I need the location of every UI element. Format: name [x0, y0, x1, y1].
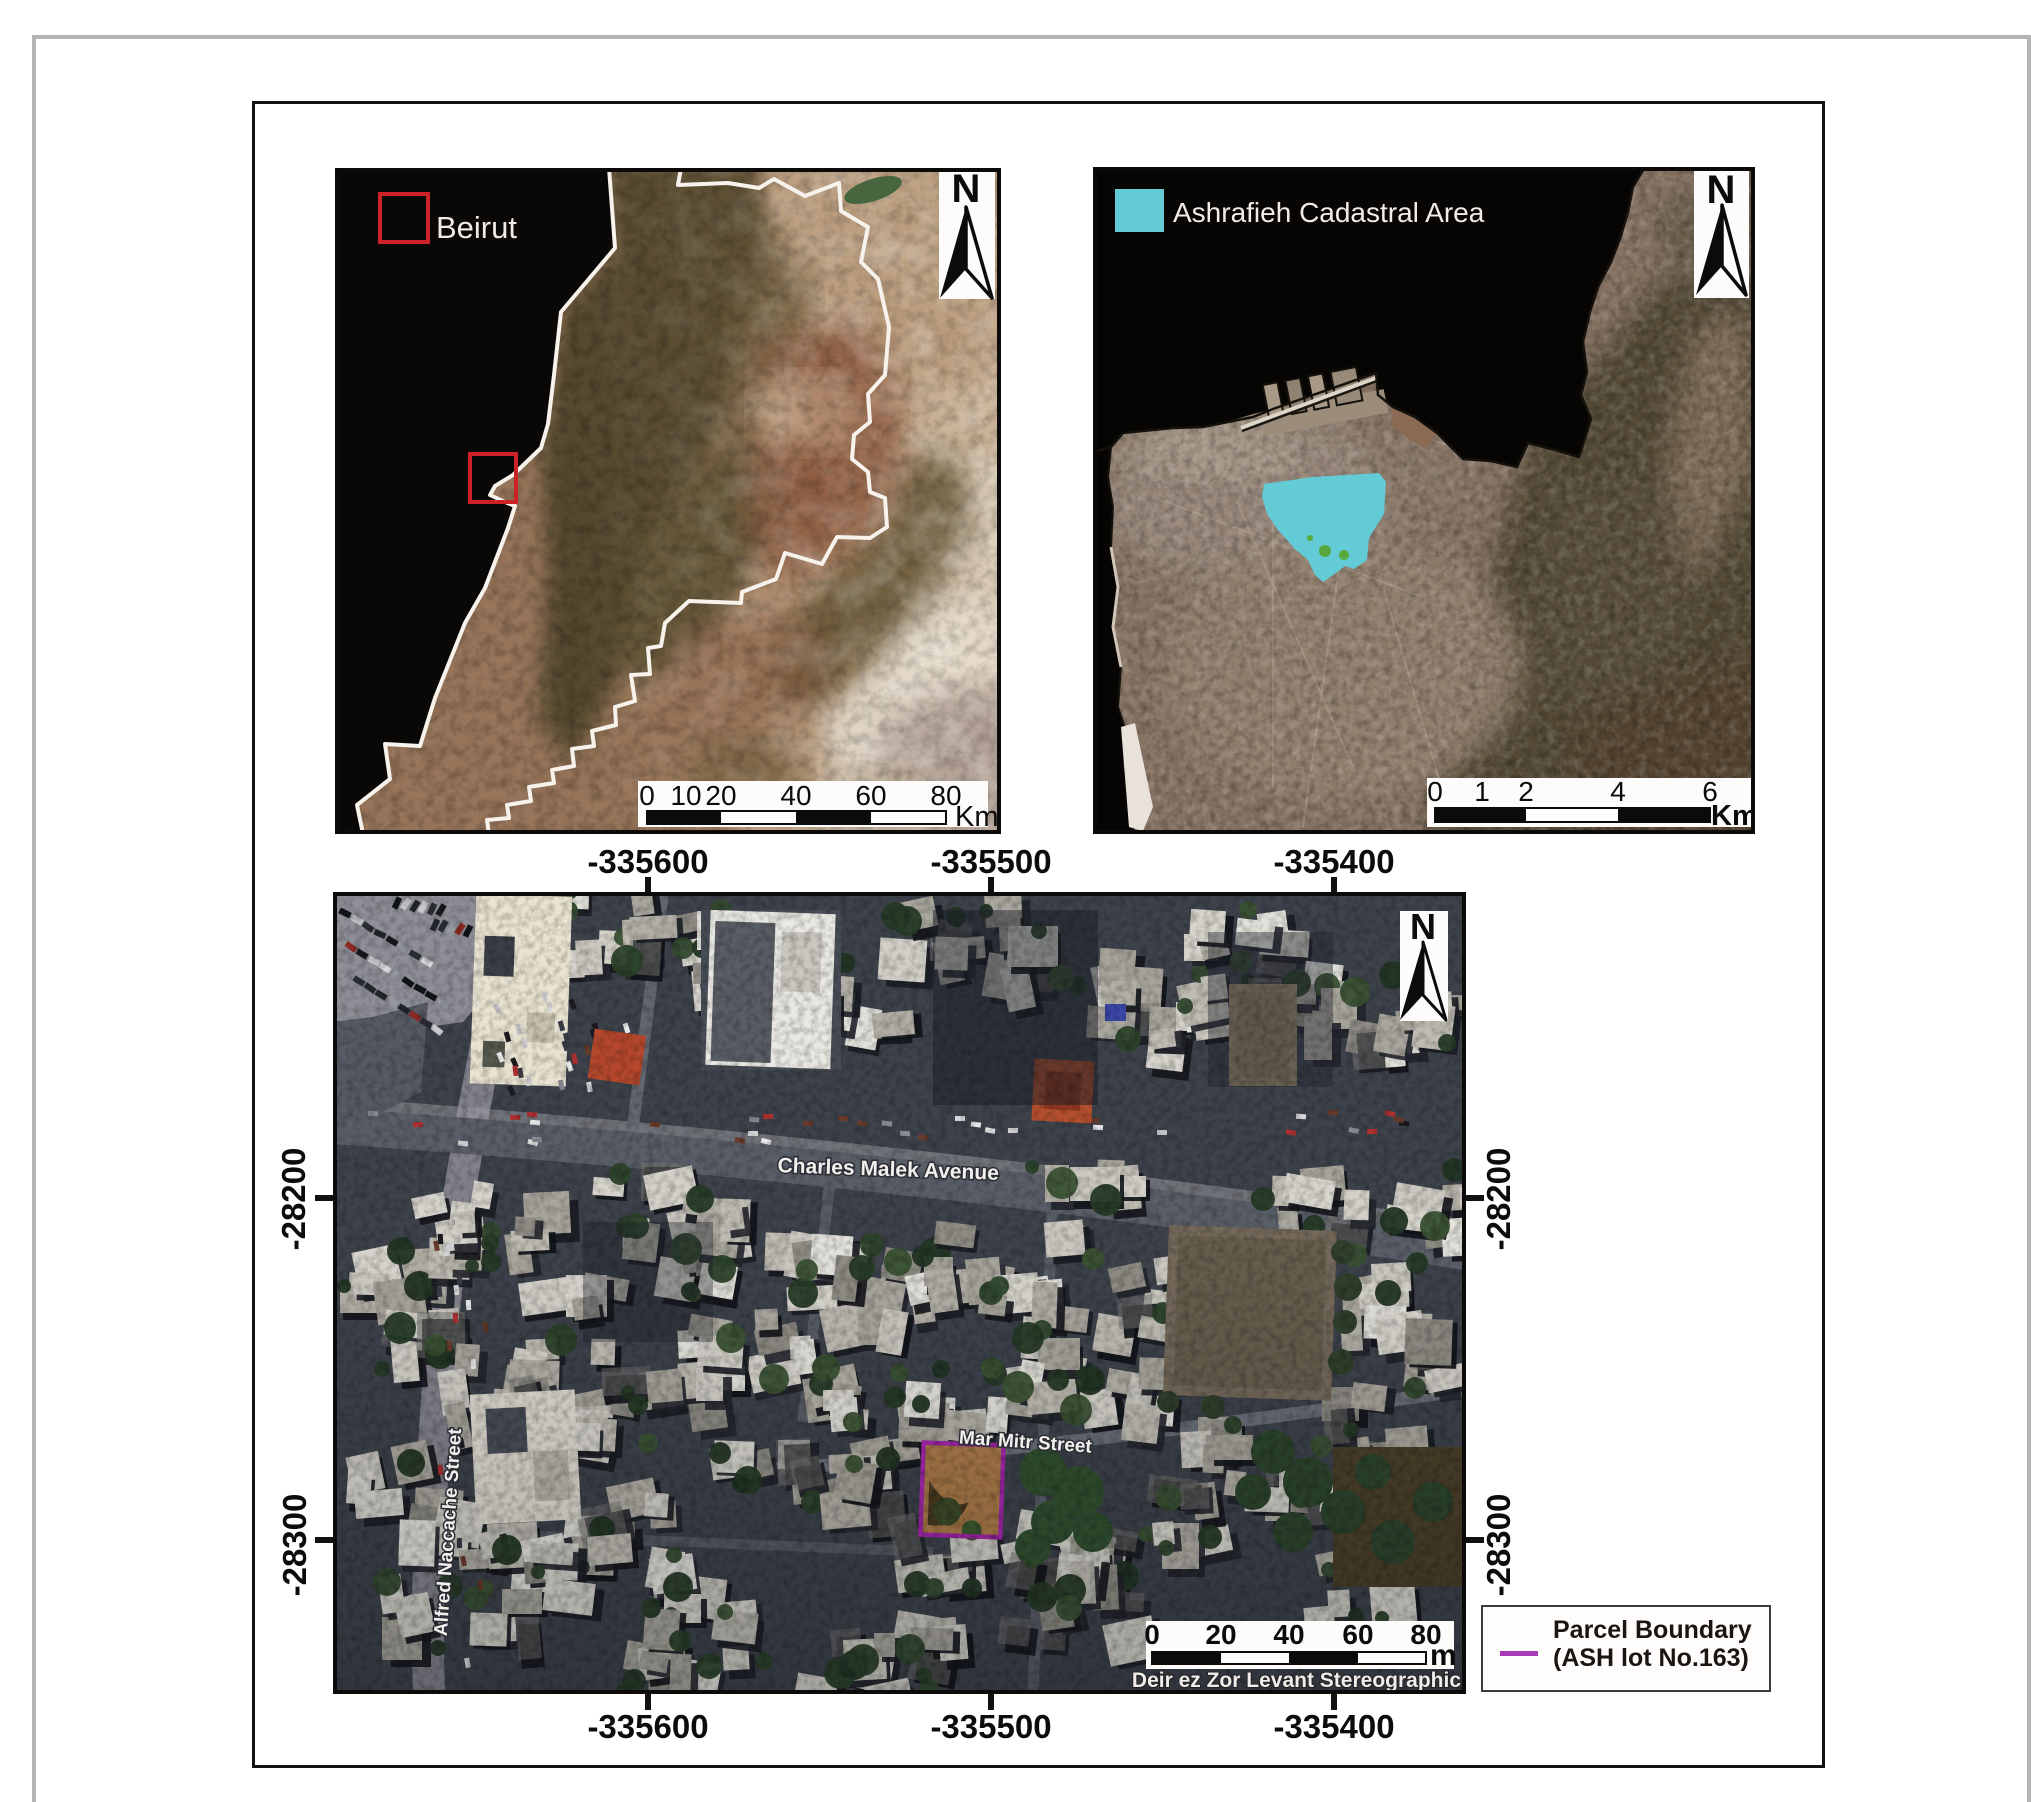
- svg-text:2: 2: [1518, 776, 1534, 807]
- svg-text:40: 40: [780, 780, 811, 811]
- svg-text:Ashrafieh Cadastral Area: Ashrafieh Cadastral Area: [1173, 197, 1485, 228]
- svg-text:20: 20: [1205, 1619, 1236, 1650]
- svg-text:20: 20: [705, 780, 736, 811]
- svg-text:Km: Km: [1711, 800, 1755, 832]
- svg-text:Deir ez Zor Levant Stereograph: Deir ez Zor Levant Stereographic: [1132, 1669, 1461, 1692]
- svg-text:60: 60: [855, 780, 886, 811]
- svg-text:m: m: [1430, 1639, 1457, 1672]
- svg-text:60: 60: [1342, 1619, 1373, 1650]
- svg-text:1: 1: [1474, 776, 1490, 807]
- svg-text:4: 4: [1610, 776, 1626, 807]
- svg-text:0: 0: [1427, 776, 1443, 807]
- svg-text:10: 10: [670, 780, 701, 811]
- svg-text:0: 0: [1144, 1619, 1160, 1650]
- svg-text:0: 0: [639, 780, 655, 811]
- svg-text:N: N: [952, 168, 981, 211]
- svg-text:40: 40: [1273, 1619, 1304, 1650]
- svg-text:Km: Km: [955, 801, 999, 833]
- svg-text:Beirut: Beirut: [436, 210, 517, 245]
